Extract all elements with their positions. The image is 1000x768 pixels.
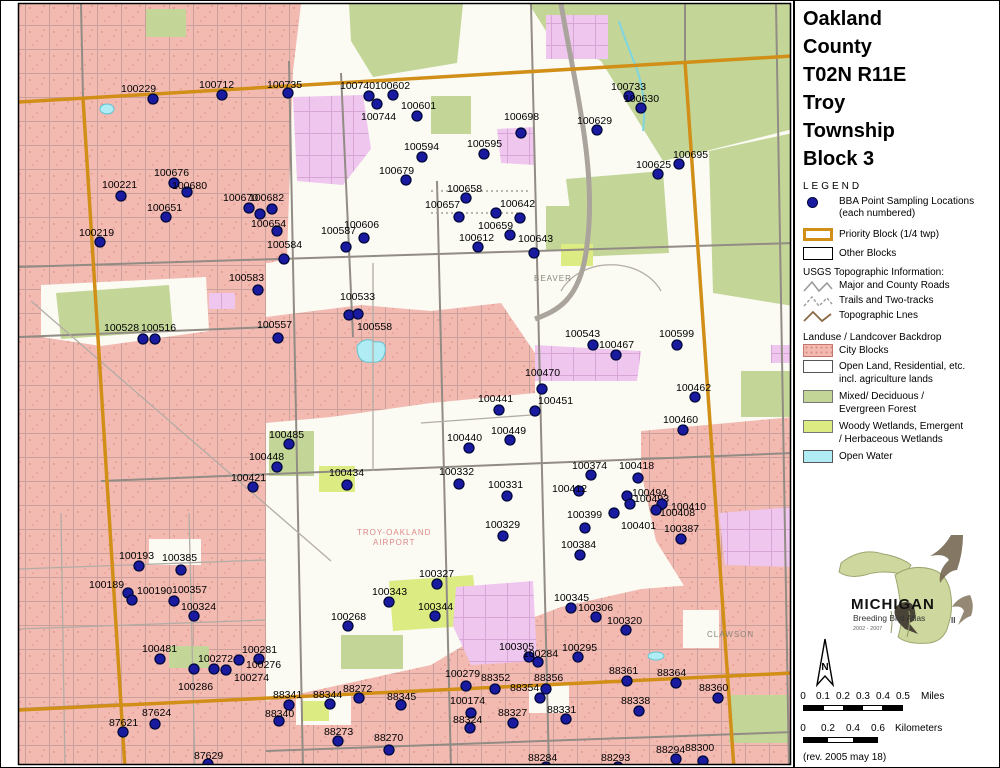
- bba-point-label: 100462: [676, 382, 711, 394]
- bba-point-label: 100193: [119, 550, 154, 562]
- bba-point-100279[interactable]: [461, 681, 471, 691]
- bba-point-label: 100401: [621, 520, 656, 532]
- bba-point-label: 88294: [656, 744, 685, 756]
- bba-point-label: 88327: [498, 707, 527, 719]
- scale-tick: 0.3: [856, 691, 870, 702]
- bba-point-88356[interactable]: [535, 693, 545, 703]
- place-label: BEAVER: [534, 274, 572, 283]
- bba-point-100399[interactable]: [580, 523, 590, 533]
- bba-point-88270[interactable]: [384, 745, 394, 755]
- bba-point-88354[interactable]: [541, 684, 551, 694]
- legend-label: Topographic Lnes: [839, 310, 1000, 322]
- bba-point-label: 88360: [699, 682, 728, 694]
- scalebar-kilometers: 0 0.2 0.4 0.6 Kilometers: [795, 723, 1000, 747]
- legend-sublabel: Evergreen Forest: [839, 404, 1000, 416]
- scale-tick: 0: [800, 691, 806, 702]
- bba-point-label: 100733: [611, 81, 646, 93]
- place-label: CLAWSON: [707, 630, 754, 639]
- bba-point-label: 100190: [137, 585, 172, 597]
- wetlands-swatch: [803, 420, 833, 433]
- bba-point-100657[interactable]: [454, 212, 464, 222]
- bba-point-label: 100583: [229, 272, 264, 284]
- bba-point-100594[interactable]: [417, 152, 427, 162]
- bba-point-100599[interactable]: [672, 340, 682, 350]
- bba-point-100583[interactable]: [253, 285, 263, 295]
- bba-point-label: 100659: [478, 220, 513, 232]
- bba-point-label: 100642: [500, 198, 535, 210]
- bba-point-label: 100654: [251, 218, 286, 230]
- bba-point-label: 100421: [231, 472, 266, 484]
- title-line: Township: [803, 117, 906, 145]
- bba-point-label: 100276: [246, 659, 281, 671]
- bba-point-label: 100219: [79, 227, 114, 239]
- bba-point-100516[interactable]: [150, 334, 160, 344]
- bba-point-label: 100327: [419, 568, 454, 580]
- bba-point-label: 100306: [578, 602, 613, 614]
- bba-point-label: 100602: [375, 80, 410, 92]
- topo-zigzag-icon: [803, 310, 833, 323]
- bba-point-label: 100295: [562, 642, 597, 654]
- scale-tick: 0.2: [821, 723, 835, 734]
- logo-years: 2002 - 2007: [853, 626, 882, 632]
- bba-point-label: 100528: [104, 322, 139, 334]
- bba-point-label: 100740: [340, 80, 375, 92]
- bba-point-100451[interactable]: [530, 406, 540, 416]
- bba-point-100272[interactable]: [209, 664, 219, 674]
- map-canvas[interactable]: BEAVERTROY-OAKLANDAIRPORTCLAWSON 1002291…: [1, 1, 793, 768]
- bba-point-100481[interactable]: [155, 654, 165, 664]
- place-label: TROY-OAKLAND: [357, 528, 431, 537]
- scalebar: [803, 705, 903, 711]
- bba-point-label: 100384: [561, 539, 596, 551]
- bba-point-label: 100682: [249, 192, 284, 204]
- bba-point-label: 100387: [664, 523, 699, 535]
- bba-point-label: 100329: [485, 519, 520, 531]
- bba-point-label: 100712: [199, 79, 234, 91]
- north-arrow: N: [811, 637, 839, 691]
- bba-point-88364[interactable]: [671, 678, 681, 688]
- title-line: T02N R11E: [803, 61, 906, 89]
- bba-point-label: 100385: [162, 552, 197, 564]
- bba-point-label: 100434: [329, 467, 364, 479]
- bba-point-label: 100658: [447, 183, 482, 195]
- bba-point-100642[interactable]: [515, 213, 525, 223]
- bba-point-label: 100558: [357, 321, 392, 333]
- bba-point-100332[interactable]: [454, 479, 464, 489]
- bba-point-label: 100595: [467, 138, 502, 150]
- legend-label: City Blocks: [839, 345, 1000, 357]
- scale-unit: Kilometers: [895, 723, 942, 734]
- bba-point-100418[interactable]: [633, 473, 643, 483]
- bba-point-label: 100274: [234, 672, 269, 684]
- bba-point-label: 88352: [481, 672, 510, 684]
- bba-point-100229[interactable]: [148, 94, 158, 104]
- bba-point-label: 100399: [567, 509, 602, 521]
- logo-subtitle: Breeding Bird Atlas: [853, 613, 925, 623]
- bba-point-100460[interactable]: [678, 425, 688, 435]
- bba-point-label: 100516: [141, 322, 176, 334]
- page-title: Oakland County T02N R11E Troy Township B…: [803, 5, 906, 173]
- bba-point-label: 100599: [659, 328, 694, 340]
- bba-point-88352[interactable]: [490, 684, 500, 694]
- bba-point-label: 88364: [657, 667, 686, 679]
- bba-point-100606[interactable]: [359, 233, 369, 243]
- forest-swatch: [803, 390, 833, 403]
- legend-label: Priority Block (1/4 twp): [839, 229, 1000, 241]
- bba-point-label: 88341: [273, 689, 302, 701]
- bba-point-100740[interactable]: [364, 91, 374, 101]
- bba-point-label: 100460: [663, 414, 698, 426]
- bba-point-label: 100470: [525, 367, 560, 379]
- scalebar-miles: 0 0.1 0.2 0.3 0.4 0.5 Miles: [795, 691, 1000, 715]
- bba-point-label: 100485: [269, 429, 304, 441]
- bba-point-label: 88361: [609, 665, 638, 677]
- bba-point-100193[interactable]: [134, 561, 144, 571]
- bba-point-label: 100412: [552, 483, 587, 495]
- legend-sublabel: (each numbered): [839, 208, 1000, 220]
- bba-point-label: 100272: [198, 653, 233, 665]
- bba-point-label: 100344: [418, 601, 453, 613]
- bba-point-100601[interactable]: [412, 111, 422, 121]
- bba-point-label: 100441: [478, 393, 513, 405]
- bba-point-label: 88356: [534, 672, 563, 684]
- legend-sublabel: incl. agriculture lands: [839, 374, 1000, 386]
- bba-point-100190[interactable]: [127, 595, 137, 605]
- legend-label: Open Land, Residential, etc.: [839, 361, 1000, 373]
- legend-label: Mixed/ Deciduous /: [839, 391, 1000, 403]
- bba-point-label: 100467: [599, 339, 634, 351]
- bba-point-label: 87629: [194, 750, 223, 762]
- bba-point-label: 100651: [147, 202, 182, 214]
- bba-point-label: 100676: [154, 167, 189, 179]
- revision-note: (rev. 2005 may 18): [803, 752, 886, 763]
- bba-point-label: 88293: [601, 752, 630, 764]
- bba-point-100401[interactable]: [609, 508, 619, 518]
- bba-point-100274[interactable]: [221, 665, 231, 675]
- bba-point-label: 100481: [142, 643, 177, 655]
- bba-point-label: 88344: [313, 689, 342, 701]
- bba-point-label: 100451: [538, 395, 573, 407]
- bba-point-label: 100174: [450, 695, 485, 707]
- bba-point-label: 100625: [636, 159, 671, 171]
- bba-point-label: 100229: [121, 83, 156, 95]
- legend-sublabel: / Herbaceous Wetlands: [839, 434, 1000, 446]
- bba-point-label: 100408: [660, 507, 695, 519]
- bba-point-label: 100679: [379, 165, 414, 177]
- bba-point-label: 100630: [624, 93, 659, 105]
- bba-point-87624[interactable]: [150, 719, 160, 729]
- bba-point-100587[interactable]: [341, 242, 351, 252]
- bba-point-100327[interactable]: [432, 579, 442, 589]
- scale-tick: 0.4: [876, 691, 890, 702]
- bba-point-100558[interactable]: [353, 309, 363, 319]
- bba-point-100698[interactable]: [516, 128, 526, 138]
- bba-point-label: 100324: [181, 601, 216, 613]
- bba-point-label: 100343: [372, 586, 407, 598]
- bba-point-100221[interactable]: [116, 191, 126, 201]
- scale-unit: Miles: [921, 691, 944, 702]
- map-backdrop: BEAVERTROY-OAKLANDAIRPORTCLAWSON 1002291…: [19, 4, 793, 768]
- bba-point-88338[interactable]: [634, 706, 644, 716]
- bba-point-label: 100418: [619, 460, 654, 472]
- bba-point-label: 88338: [621, 695, 650, 707]
- bba-point-label: 100221: [102, 179, 137, 191]
- place-label: AIRPORT: [373, 538, 415, 547]
- bba-point-100543[interactable]: [588, 340, 598, 350]
- scale-tick: 0.1: [816, 691, 830, 702]
- legend-label: Trails and Two-tracks: [839, 295, 1000, 307]
- bba-point-label: 100281: [242, 644, 277, 656]
- bba-point-label: 100698: [504, 111, 539, 123]
- bba-point-88360[interactable]: [713, 693, 723, 703]
- bba-point-100286[interactable]: [189, 664, 199, 674]
- bba-point-label: 100680: [172, 180, 207, 192]
- bba-point-label: 88270: [374, 732, 403, 744]
- bba-point-100528[interactable]: [138, 334, 148, 344]
- bba-point-label: 100584: [267, 239, 302, 251]
- bba-point-100643[interactable]: [529, 248, 539, 258]
- title-line: County: [803, 33, 906, 61]
- bba-point-label: 100320: [607, 615, 642, 627]
- bba-point-label: 100643: [518, 233, 553, 245]
- bba-point-100670[interactable]: [244, 203, 254, 213]
- title-line: Oakland: [803, 5, 906, 33]
- bba-point-label: 100594: [404, 141, 439, 153]
- bba-point-100470[interactable]: [537, 384, 547, 394]
- bba-point[interactable]: [255, 209, 265, 219]
- open-water-swatch: [803, 450, 833, 463]
- bba-point-label: 100744: [361, 111, 396, 123]
- other-blocks-swatch: [803, 247, 833, 260]
- north-label: N: [821, 662, 828, 673]
- bba-point-label: 100448: [249, 451, 284, 463]
- usgs-heading: USGS Topographic Information:: [803, 267, 944, 279]
- bba-point-100434[interactable]: [342, 480, 352, 490]
- legend-label: Woody Wetlands, Emergent: [839, 421, 1000, 433]
- bba-point-label: 100601: [401, 100, 436, 112]
- bba-point-label: 100587: [321, 225, 356, 237]
- bba-point-label: 87621: [109, 717, 138, 729]
- road-zigzag-icon: [803, 280, 833, 293]
- logo-name: MICHIGAN: [851, 596, 935, 613]
- bba-point-label: 87624: [142, 707, 171, 719]
- bba-point-label: 100629: [577, 115, 612, 127]
- legend-label: Major and County Roads: [839, 280, 1000, 292]
- open-land-swatch: [803, 360, 833, 373]
- bba-point-label: 88273: [324, 726, 353, 738]
- trail-zigzag-icon: [803, 295, 833, 308]
- atlas-map-page: BEAVERTROY-OAKLANDAIRPORTCLAWSON 1002291…: [0, 0, 1000, 768]
- bba-point-label: 88300: [685, 742, 714, 754]
- scale-tick: 0: [800, 723, 806, 734]
- bba-point-100357[interactable]: [169, 596, 179, 606]
- bba-point-label: 100332: [439, 466, 474, 478]
- bba-point-100387[interactable]: [676, 534, 686, 544]
- bba-point-100343[interactable]: [384, 597, 394, 607]
- bba-point-100345[interactable]: [566, 603, 576, 613]
- bba-point-100385[interactable]: [176, 565, 186, 575]
- bba-point-100384[interactable]: [575, 550, 585, 560]
- bba-point-label: 88324: [453, 714, 482, 726]
- bba-point-label: 100695: [673, 149, 708, 161]
- scale-tick: 0.5: [896, 691, 910, 702]
- bba-point-100584[interactable]: [279, 254, 289, 264]
- bba-point-100276[interactable]: [234, 655, 244, 665]
- bba-point-label: 100612: [459, 232, 494, 244]
- bba-point-label: 100279: [445, 668, 480, 680]
- city-blocks-swatch: [803, 344, 833, 357]
- bba-point-label: 100449: [491, 425, 526, 437]
- landuse-heading: Landuse / Landcover Backdrop: [803, 332, 941, 344]
- legend-label: BBA Point Sampling Locations: [839, 196, 1000, 208]
- bba-point-label: 88331: [547, 704, 576, 716]
- bba-point-label: 88272: [343, 683, 372, 695]
- side-panel: Oakland County T02N R11E Troy Township B…: [793, 1, 1000, 768]
- scale-tick: 0.2: [836, 691, 850, 702]
- bba-point-100467[interactable]: [611, 350, 621, 360]
- bba-point[interactable]: [491, 208, 501, 218]
- bba-point-label: 100357: [172, 584, 207, 596]
- bba-point-100595[interactable]: [479, 149, 489, 159]
- priority-block-swatch: [803, 228, 833, 241]
- bba-point-88327[interactable]: [508, 718, 518, 728]
- michigan-bba-logo: MICHIGAN Breeding Bird Atlas 2002 - 2007…: [833, 533, 997, 655]
- title-line: Troy: [803, 89, 906, 117]
- bba-point-label: 100374: [572, 460, 607, 472]
- bba-point-label: 100557: [257, 319, 292, 331]
- scale-tick: 0.6: [871, 723, 885, 734]
- bba-point-100331[interactable]: [502, 491, 512, 501]
- legend-label: Other Blocks: [839, 248, 1000, 260]
- bba-point-label: 100189: [89, 579, 124, 591]
- bba-point-100557[interactable]: [273, 333, 283, 343]
- bba-point-label: 100268: [331, 611, 366, 623]
- bba-point-label: 100440: [447, 432, 482, 444]
- bba-point-100448[interactable]: [272, 462, 282, 472]
- bba-point-label: 100284: [523, 648, 558, 660]
- bba-point-100440[interactable]: [464, 443, 474, 453]
- bba-point-100441[interactable]: [494, 405, 504, 415]
- bba-point-label: 88345: [387, 691, 416, 703]
- bba-point-label: 100657: [425, 199, 460, 211]
- bba-point-88361[interactable]: [622, 676, 632, 686]
- bba-point-label: 88284: [528, 752, 557, 764]
- legend-label: Open Water: [839, 451, 1000, 463]
- bba-point-label: 100286: [178, 681, 213, 693]
- bba-point-label: 100543: [565, 328, 600, 340]
- bba-point-100712[interactable]: [217, 90, 227, 100]
- logo-numeral: II: [951, 616, 955, 625]
- bba-point-icon: [807, 197, 818, 208]
- title-line: Block 3: [803, 145, 906, 173]
- bba-point-label: 100735: [267, 79, 302, 91]
- scale-tick: 0.4: [846, 723, 860, 734]
- legend-heading: LEGEND: [803, 181, 862, 192]
- bba-point-label: 100533: [340, 291, 375, 303]
- bba-point-label: 88340: [265, 708, 294, 720]
- scalebar: [803, 737, 878, 743]
- bba-point-100329[interactable]: [498, 531, 508, 541]
- bba-point-100682[interactable]: [267, 204, 277, 214]
- bba-point-label: 100331: [488, 479, 523, 491]
- bba-point-100744[interactable]: [372, 99, 382, 109]
